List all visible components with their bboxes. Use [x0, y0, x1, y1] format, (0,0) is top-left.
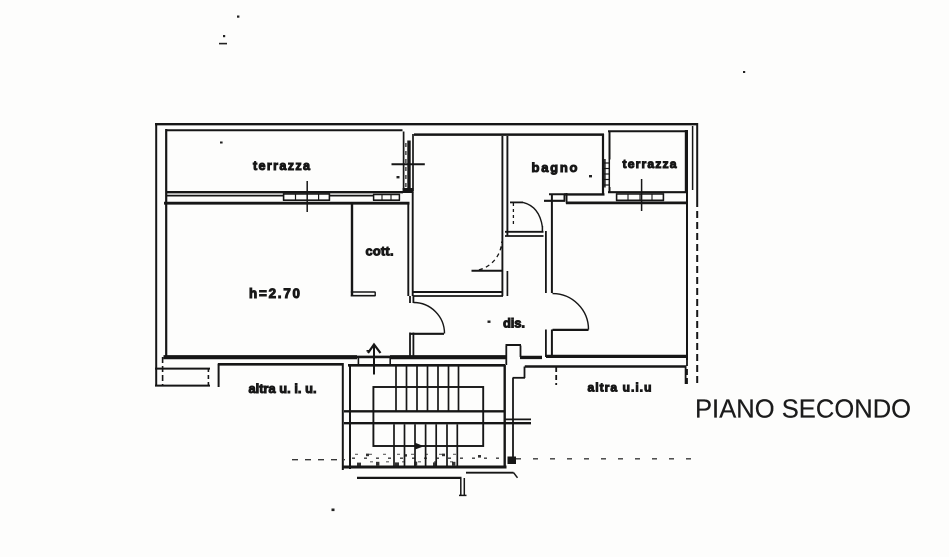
svg-text:altra u. i. u.: altra u. i. u. — [249, 381, 317, 396]
svg-text:PIANO SECONDO: PIANO SECONDO — [695, 396, 911, 424]
svg-text:bagno: bagno — [532, 160, 578, 175]
svg-text:cott.: cott. — [366, 244, 394, 259]
svg-text:altra u.i.u: altra u.i.u — [588, 381, 652, 395]
svg-text:dis.: dis. — [503, 316, 525, 331]
svg-text:terrazza: terrazza — [253, 159, 311, 173]
svg-text:terrazza: terrazza — [623, 157, 677, 171]
svg-text:h=2.70: h=2.70 — [249, 286, 300, 301]
